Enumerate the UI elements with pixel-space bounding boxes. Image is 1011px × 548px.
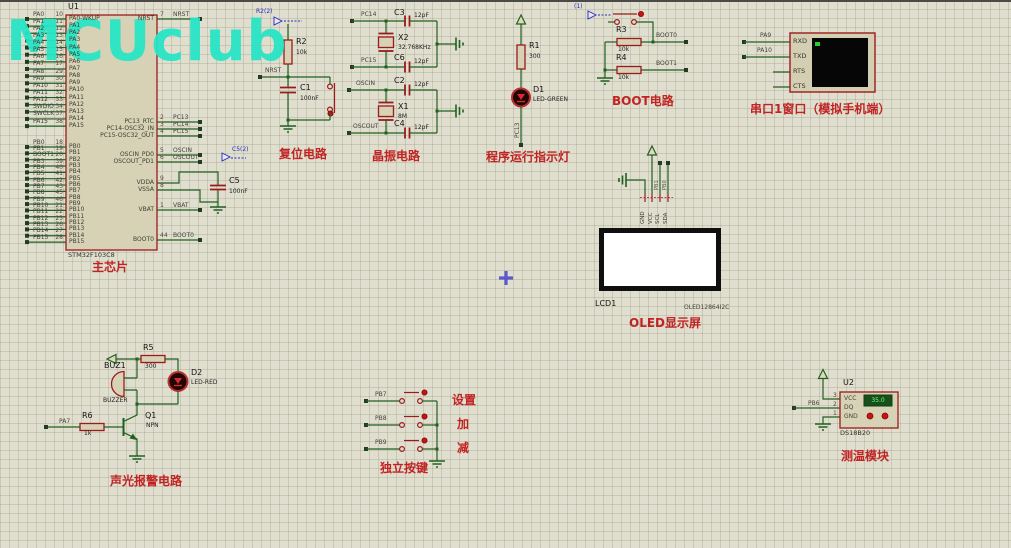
r1-value: 300 xyxy=(529,54,540,60)
pin-number: 30 xyxy=(46,76,63,82)
section-label-boot: BOOT电路 xyxy=(612,95,674,107)
c1-ref: C1 xyxy=(300,84,311,92)
section-label-keys: 独立按键 xyxy=(380,462,428,474)
pin-number: 11 xyxy=(46,19,63,25)
pa7-net-label: PA7 xyxy=(59,419,70,425)
pc14-net-label: PC14 xyxy=(361,12,376,18)
buz1-ref: BUZ1 xyxy=(104,362,126,370)
terminal-pin-cts: CTS xyxy=(793,83,806,90)
section-label-serial: 串口1窗口（模拟手机端） xyxy=(750,103,890,115)
r5-ref: R5 xyxy=(143,344,154,352)
c5-value: 100nF xyxy=(229,189,248,195)
c6-ref: C6 xyxy=(394,54,405,62)
ds18b20-pin-gnd: GND xyxy=(844,414,858,420)
pin-name: PA9 xyxy=(69,80,80,86)
c2-value: 12pF xyxy=(414,82,429,88)
pin-name: PA8 xyxy=(69,73,80,79)
pin-number: 1 xyxy=(160,203,164,209)
boot0-net-label: BOOT0 xyxy=(656,33,677,39)
c1-value: 100nF xyxy=(300,96,319,102)
buz1-value: BUZZER xyxy=(103,398,128,404)
pin-number: 6 xyxy=(160,155,164,161)
pin-number: 29 xyxy=(46,69,63,75)
pin-name: PA3 xyxy=(69,37,80,43)
pin-number: 2 xyxy=(160,115,164,121)
key-label-plus: 加 xyxy=(457,418,469,430)
section-label-mcu: 主芯片 xyxy=(92,261,128,273)
x2-value: 32.768KHz xyxy=(398,45,431,51)
pin-net-label: PA3 xyxy=(33,33,44,39)
pin-name: PA10 xyxy=(69,87,84,93)
pin-number: 37 xyxy=(46,111,63,117)
pin-net-label: PC14 xyxy=(173,122,188,128)
pin-net-label: VBAT xyxy=(173,203,189,209)
pin-number: 34 xyxy=(46,104,63,110)
terminal-pin-txd: TXD xyxy=(793,53,806,60)
c4-value: 12pF xyxy=(414,125,429,131)
u2-ref: U2 xyxy=(843,379,854,387)
pin-net-label: PA4 xyxy=(33,40,44,46)
c2-ref: C2 xyxy=(394,77,405,85)
section-label-oled: OLED显示屏 xyxy=(629,317,701,329)
pin-number: 32 xyxy=(46,90,63,96)
pin-name: PA4 xyxy=(69,45,80,51)
pin-net-label: PA7 xyxy=(33,61,44,67)
section-label-crystal: 晶振电路 xyxy=(372,150,420,162)
pin-name: PA14 xyxy=(69,116,84,122)
key-label-minus: 减 xyxy=(457,442,469,454)
pin-name: OSCOUT_PD1 xyxy=(94,159,154,165)
terminal-pin-rxd: RXD xyxy=(793,38,807,45)
c3-value: 12pF xyxy=(414,13,429,19)
d1-ref: D1 xyxy=(533,86,544,94)
pin-number: 28 xyxy=(46,235,63,241)
section-label-temp: 测温模块 xyxy=(841,450,889,462)
ds18b20-temp-readout: 35.0 xyxy=(866,398,890,404)
pin-net-label: OSCOUT xyxy=(173,155,199,161)
pin-number: 8 xyxy=(160,183,164,189)
r3-ref: R3 xyxy=(616,26,627,34)
pin-number: 3 xyxy=(160,122,164,128)
q1-value: NPN xyxy=(146,423,159,429)
pin-net-label: PA1 xyxy=(33,19,44,25)
pin-name: PA12 xyxy=(69,102,84,108)
ds18b20-pin-vcc: VCC xyxy=(844,396,856,402)
ds18b20-pin1-num: 1 xyxy=(833,411,837,417)
pb9-net-label: PB9 xyxy=(375,440,387,446)
ds18b20-pin3-num: 3 xyxy=(833,393,837,399)
pin-net-label: OSCIN xyxy=(173,148,192,154)
c4-ref: C4 xyxy=(394,120,405,128)
oled-pin-sda: SDA xyxy=(664,213,670,224)
lcd1-ref: LCD1 xyxy=(595,300,616,308)
c3-ref: C3 xyxy=(394,9,405,17)
pin-name: PA6 xyxy=(69,59,80,65)
pin-number: 12 xyxy=(46,26,63,32)
c6-value: 12pF xyxy=(414,59,429,65)
section-label-reset: 复位电路 xyxy=(279,148,327,160)
pin-number: 7 xyxy=(160,12,164,18)
sda-net-label: PB0 xyxy=(663,180,668,190)
d2-value: LED-RED xyxy=(191,380,218,386)
x2-ref: X2 xyxy=(398,34,409,42)
c5-ref: C5 xyxy=(229,177,240,185)
r6-ref: R6 xyxy=(82,412,93,420)
pin-number: 5 xyxy=(160,148,164,154)
ds18b20-pin-dq: DQ xyxy=(844,405,853,411)
pin-number: 16 xyxy=(46,54,63,60)
oscin-net-label: OSCIN xyxy=(356,81,375,87)
schematic-canvas: U1 STM32F103C8 主芯片 C5 100nF C5(2) R2(2) … xyxy=(0,0,1011,548)
pin-number: 17 xyxy=(46,61,63,67)
pin-net-label: NRST xyxy=(173,12,189,18)
oled-pin-vcc: VCC xyxy=(649,213,655,224)
u2-part: DS18B20 xyxy=(840,430,870,437)
terminal-pin-rts: RTS xyxy=(793,68,805,75)
labels-layer: U1 STM32F103C8 主芯片 C5 100nF C5(2) R2(2) … xyxy=(0,0,1011,548)
mcu-part: STM32F103C8 xyxy=(68,252,115,259)
r2-ref: R2 xyxy=(296,38,307,46)
pin-net-label: PC15 xyxy=(173,129,188,135)
oled-part: OLED12864I2C xyxy=(684,305,729,311)
pin-net-label: PA9 xyxy=(33,76,44,82)
d1-value: LED-GREEN xyxy=(533,97,568,103)
scl-net-label: PB1 xyxy=(655,180,660,190)
d2-ref: D2 xyxy=(191,369,202,377)
r6-value: 1k xyxy=(84,431,91,437)
pin-net-label: PA6 xyxy=(33,54,44,60)
pin-net-label: PA5 xyxy=(33,47,44,53)
r4-value: 10k xyxy=(618,75,629,81)
section-label-alarm: 声光报警电路 xyxy=(110,475,182,487)
x1-ref: X1 xyxy=(398,103,409,111)
pin-name: PA2 xyxy=(69,30,80,36)
pc13-net-label: PC13 xyxy=(515,123,521,138)
pin-name: VBAT xyxy=(94,207,154,213)
pin-name: NRST xyxy=(94,16,154,22)
boot-probe-label: (1) xyxy=(574,4,583,10)
pin-name: PA7 xyxy=(69,66,80,72)
pin-name: PA15 xyxy=(69,123,84,129)
pin-name: VSSA xyxy=(94,187,154,193)
pin-net-label: PA8 xyxy=(33,69,44,75)
pin-name: PA11 xyxy=(69,95,84,101)
pin-name: PA13 xyxy=(69,109,84,115)
pin-name: PA1 xyxy=(69,23,80,29)
pa10-net-label: PA10 xyxy=(757,48,772,54)
pin-number: 44 xyxy=(160,233,168,239)
r2-value: 10k xyxy=(296,50,307,56)
pin-number: 13 xyxy=(46,33,63,39)
oscout-net-label: OSCOUT xyxy=(353,124,379,130)
pin-number: 31 xyxy=(46,83,63,89)
r4-ref: R4 xyxy=(616,54,627,62)
pin-number: 33 xyxy=(46,97,63,103)
c5-probe-label: C5(2) xyxy=(232,147,249,153)
oled-pin-scl: SCL xyxy=(656,214,662,224)
pin-net-label: PA2 xyxy=(33,26,44,32)
pin-number: 4 xyxy=(160,129,164,135)
oled-pin-gnd: GND xyxy=(641,211,647,224)
pin-name: PC15-OSC32_OUT xyxy=(94,133,154,139)
pb8-net-label: PB8 xyxy=(375,416,387,422)
pb7-net-label: PB7 xyxy=(375,392,387,398)
r5-value: 300 xyxy=(145,364,156,370)
pin-number: 14 xyxy=(46,40,63,46)
q1-ref: Q1 xyxy=(145,412,156,420)
pin-number: 38 xyxy=(46,119,63,125)
pb6-net-label: PB6 xyxy=(808,401,820,407)
pin-number: 9 xyxy=(160,176,164,182)
pc15-net-label: PC15 xyxy=(361,58,376,64)
boot1-net-label: BOOT1 xyxy=(656,61,677,67)
pin-number: 15 xyxy=(46,47,63,53)
pin-number: 10 xyxy=(46,12,63,18)
r1-ref: R1 xyxy=(529,42,540,50)
key-label-set: 设置 xyxy=(452,394,476,406)
section-label-indicator: 程序运行指示灯 xyxy=(486,151,570,163)
pin-net-label: PC13 xyxy=(173,115,188,121)
pa9-net-label: PA9 xyxy=(760,33,771,39)
ds18b20-pin2-num: 2 xyxy=(833,402,837,408)
pin-net-label: BOOT0 xyxy=(173,233,194,239)
pin-name: BOOT0 xyxy=(94,237,154,243)
pin-net-label: PA0 xyxy=(33,12,44,18)
pin-name: PB15 xyxy=(69,239,84,245)
pin-name: PA5 xyxy=(69,52,80,58)
